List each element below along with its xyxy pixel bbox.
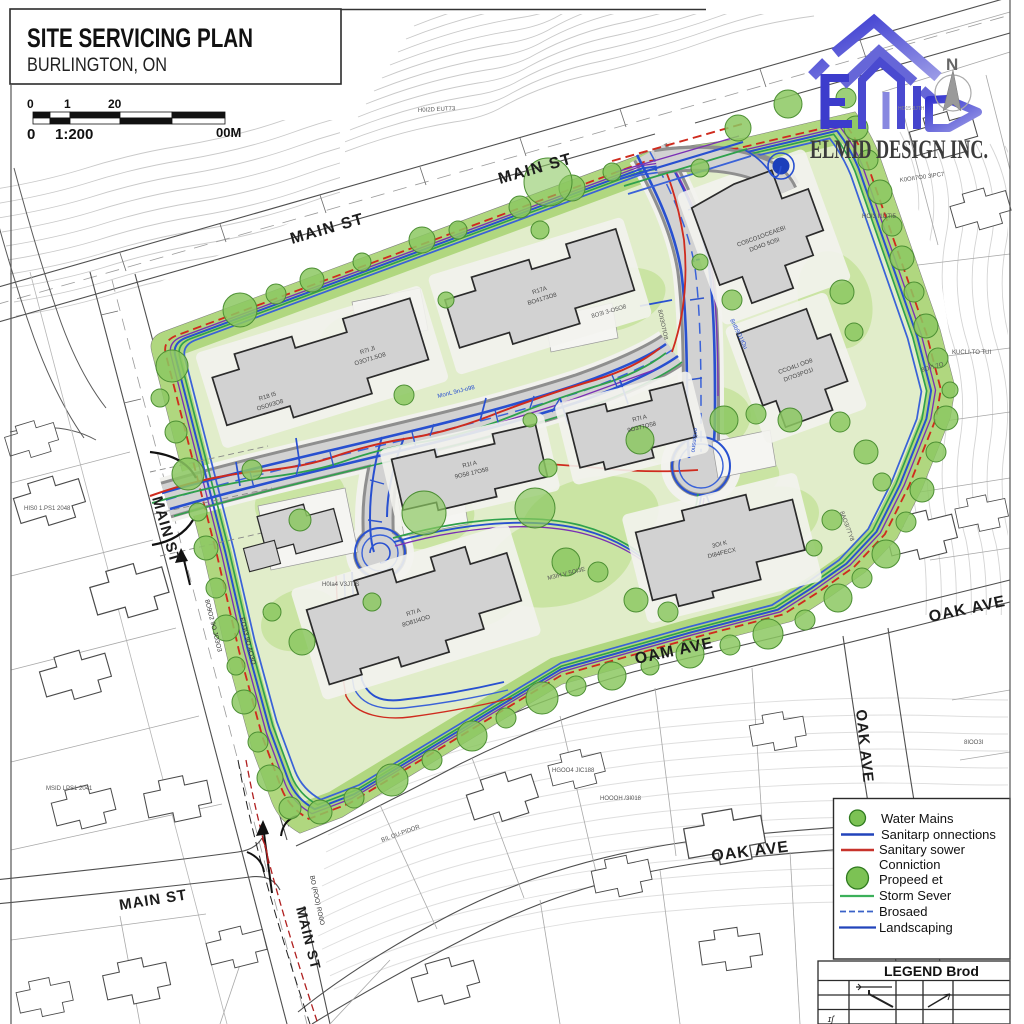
svg-text:Sanitarp onnections: Sanitarp onnections (881, 827, 996, 842)
svg-text:1:200: 1:200 (55, 126, 93, 143)
svg-text:HO15 8JTH: HO15 8JTH (898, 106, 925, 112)
svg-text:HOOOH /3I018: HOOOH /3I018 (600, 796, 642, 802)
svg-text:1: 1 (64, 97, 71, 111)
svg-text:Conniction: Conniction (879, 857, 940, 872)
svg-text:SITE SERVICING PLAN: SITE SERVICING PLAN (27, 23, 253, 53)
svg-text:Landscaping: Landscaping (879, 920, 953, 935)
svg-text:0: 0 (27, 97, 34, 111)
svg-text:MSID LPS1 2041: MSID LPS1 2041 (46, 786, 93, 792)
svg-text:Water Mains: Water Mains (881, 811, 954, 826)
svg-text:HOI3 I1OTI5: HOI3 I1OTI5 (862, 214, 897, 220)
svg-text:8IOO3I: 8IOO3I (964, 740, 984, 746)
svg-text:0: 0 (27, 126, 35, 143)
svg-text:KUCLI-TO TUI: KUCLI-TO TUI (952, 350, 991, 356)
svg-text:BURLINGTON, ON: BURLINGTON, ON (27, 55, 167, 76)
svg-text:Storm Sever: Storm Sever (879, 888, 952, 903)
svg-text:HGOO4 JIC188: HGOO4 JIC188 (552, 768, 595, 774)
svg-text:20: 20 (108, 97, 122, 111)
svg-text:N: N (946, 55, 958, 74)
svg-text:LEGEND Brod: LEGEND Brod (884, 963, 979, 979)
svg-text:H0Ia4 V3JTIS: H0Ia4 V3JTIS (322, 582, 359, 588)
svg-text:ELMID DESIGN INC.: ELMID DESIGN INC. (810, 135, 988, 164)
svg-text:Propeed et: Propeed et (879, 872, 943, 887)
svg-text:HIS0 1.PS1 2048: HIS0 1.PS1 2048 (24, 506, 71, 512)
svg-text:Sanitary sower: Sanitary sower (879, 842, 966, 857)
svg-text:Brosaed: Brosaed (879, 904, 927, 919)
svg-text:00M: 00M (216, 125, 241, 140)
